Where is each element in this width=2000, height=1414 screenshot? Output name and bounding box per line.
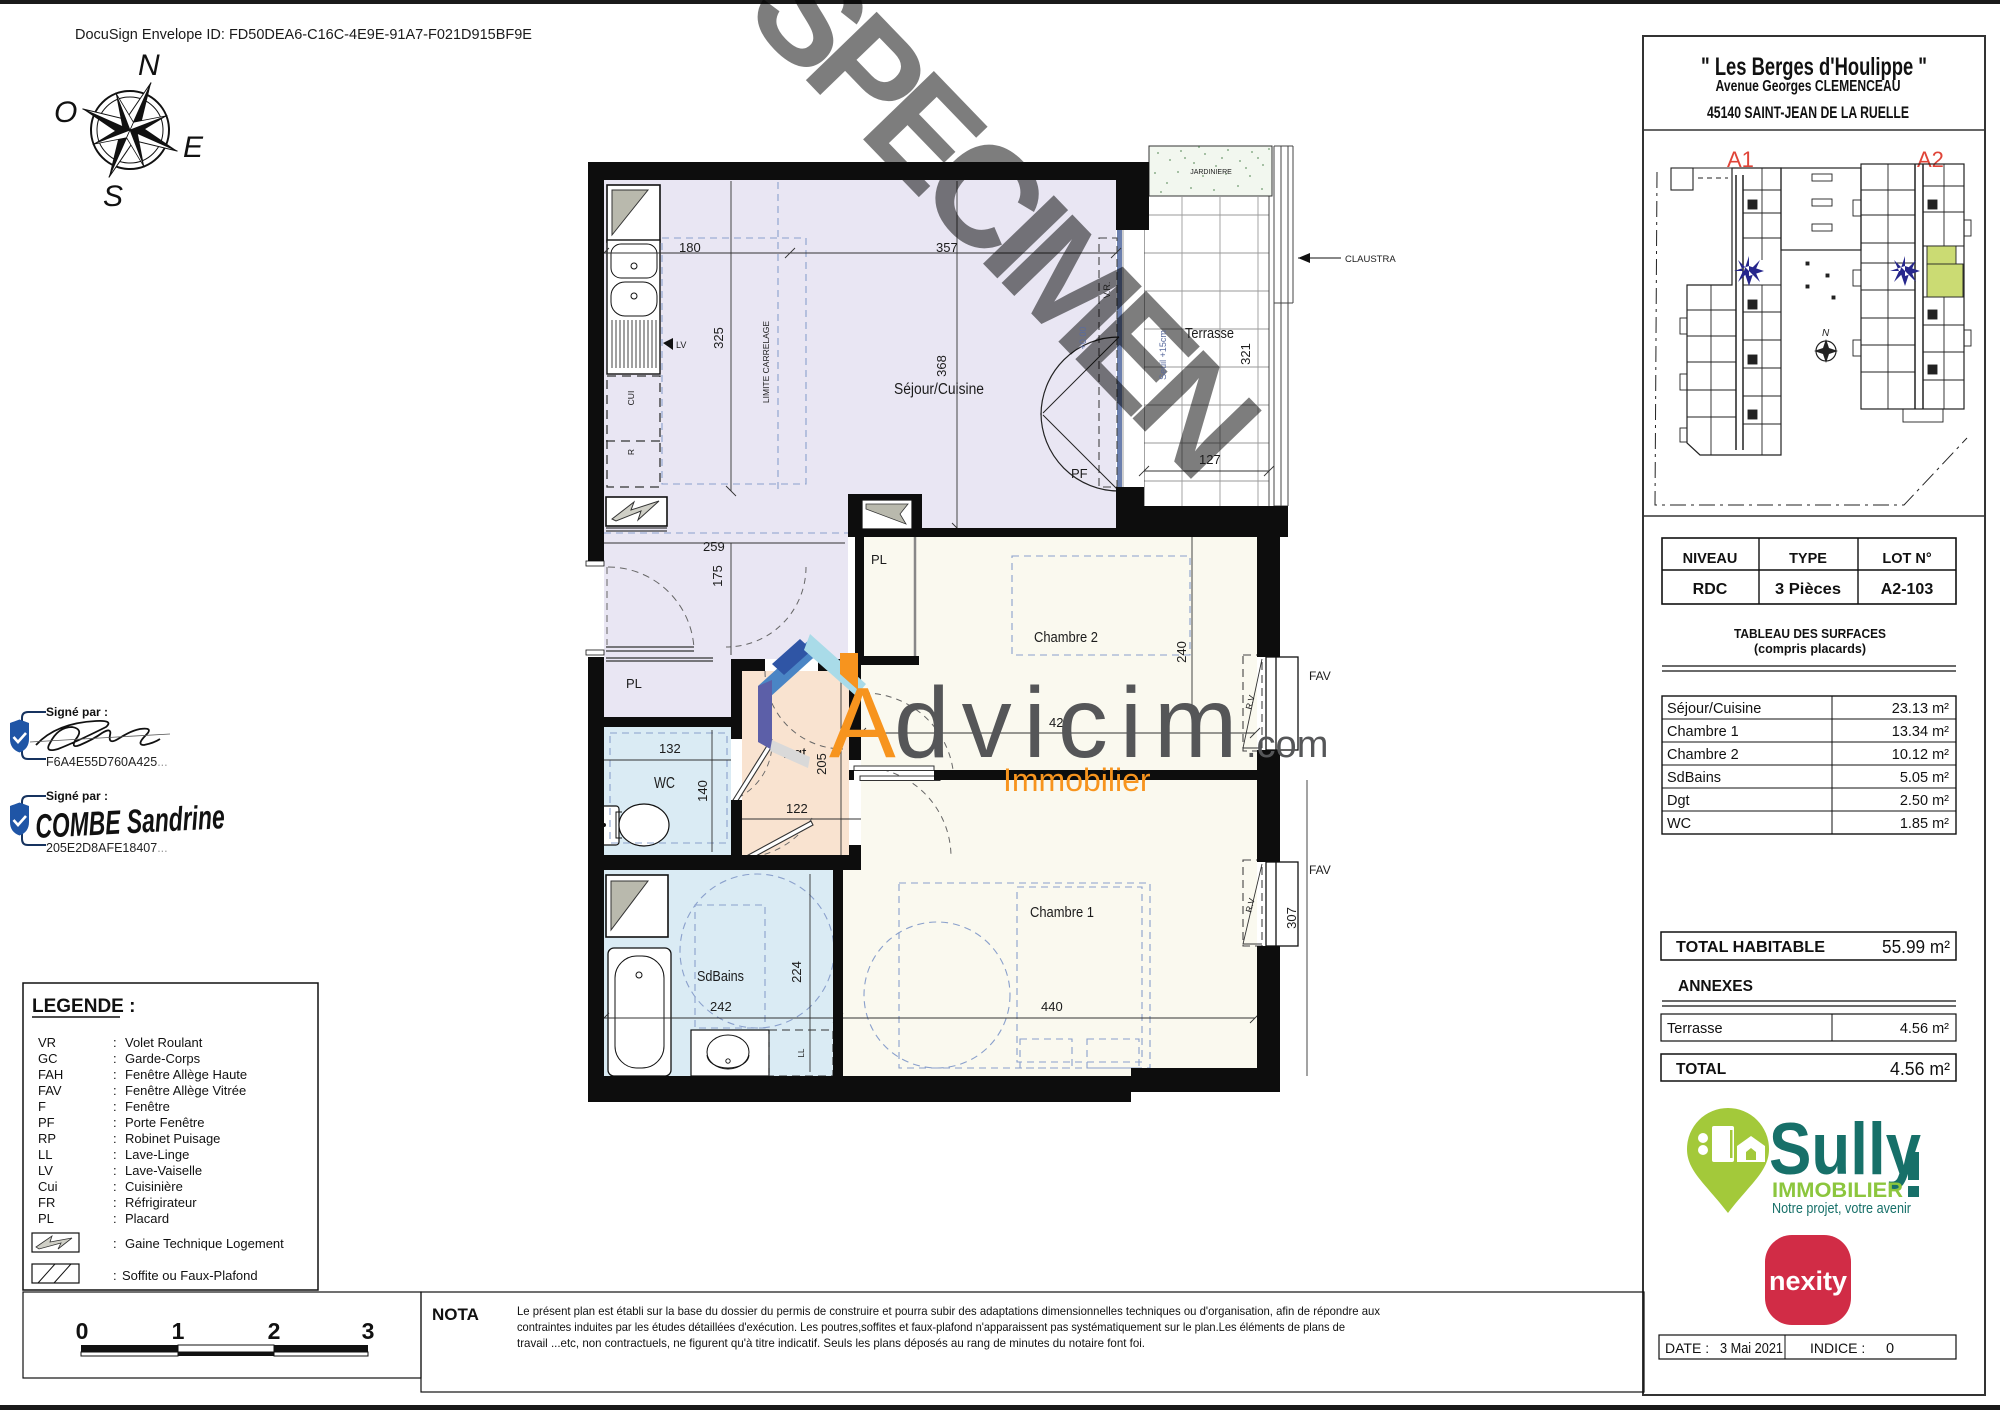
svg-text:307: 307 [1284,907,1299,929]
svg-text:LOT N°: LOT N° [1882,551,1931,567]
svg-text:Avenue Georges CLEMENCEAU: Avenue Georges CLEMENCEAU [1716,78,1901,95]
svg-text:0: 0 [76,1318,89,1344]
svg-text:R: R [626,449,636,455]
svg-text:Gaine Technique Logement: Gaine Technique Logement [125,1236,284,1251]
svg-text:+0.00: +0.00 [1078,327,1088,350]
svg-text:Chambre 1: Chambre 1 [1667,724,1739,740]
svg-text::: : [113,1179,117,1194]
svg-text::: : [113,1115,117,1130]
svg-text:NOTA: NOTA [432,1305,479,1324]
svg-text:3 Mai 2021: 3 Mai 2021 [1720,1341,1783,1357]
svg-text:10.12 m²: 10.12 m² [1892,747,1949,763]
svg-text:VR: VR [38,1035,56,1050]
svg-text:1.85 m²: 1.85 m² [1900,816,1949,832]
svg-text:45140 SAINT-JEAN DE LA RUELLE: 45140 SAINT-JEAN DE LA RUELLE [1707,104,1909,122]
svg-text:Garde-Corps: Garde-Corps [125,1051,201,1066]
svg-text:205E2D8AFE18407...: 205E2D8AFE18407... [46,841,168,855]
svg-text:ANNEXES: ANNEXES [1678,978,1753,995]
svg-text:127: 127 [1199,452,1221,467]
svg-text:180: 180 [679,240,701,255]
svg-text:122: 122 [786,801,808,816]
svg-text:PL: PL [38,1211,54,1226]
svg-text:(compris placards): (compris placards) [1754,641,1866,656]
svg-text:357: 357 [936,240,958,255]
svg-text:Dgt: Dgt [1667,793,1690,809]
svg-text:RDC: RDC [1693,581,1728,598]
svg-text:LIMITE CARRELAGE: LIMITE CARRELAGE [761,321,771,404]
svg-text:440: 440 [1041,999,1063,1014]
svg-text:Le présent plan est établi sur: Le présent plan est établi sur la base d… [517,1304,1380,1318]
svg-text::: : [113,1131,117,1146]
svg-text:Immobilier: Immobilier [1003,762,1151,798]
svg-text:JARDINIERE: JARDINIERE [1190,169,1232,176]
svg-text:N: N [138,49,160,82]
svg-text::: : [113,1083,117,1098]
svg-text:Terrasse: Terrasse [1667,1021,1723,1037]
svg-text:259: 259 [703,539,725,554]
svg-text:TOTAL HABITABLE: TOTAL HABITABLE [1676,939,1825,956]
svg-text:.com: .com [1246,724,1328,766]
svg-text:0: 0 [1886,1341,1894,1357]
svg-text::: : [113,1099,117,1114]
svg-text:55.99 m²: 55.99 m² [1882,937,1950,957]
svg-text:IMMOBILIER: IMMOBILIER [1772,1179,1903,1202]
svg-text:Cui: Cui [38,1179,58,1194]
svg-text:LL: LL [797,1048,806,1057]
svg-text:2.50 m²: 2.50 m² [1900,793,1949,809]
svg-text:1: 1 [172,1318,185,1344]
svg-text:FR: FR [38,1195,55,1210]
svg-text:Robinet Puisage: Robinet Puisage [125,1131,220,1146]
svg-text:4.56 m²: 4.56 m² [1890,1059,1950,1079]
svg-text:Réfrigirateur: Réfrigirateur [125,1195,197,1210]
svg-text:Placard: Placard [125,1211,169,1226]
svg-text:2: 2 [268,1318,281,1344]
svg-text:Terrasse: Terrasse [1185,325,1234,342]
svg-text:Lave-Vaiselle: Lave-Vaiselle [125,1163,202,1178]
svg-text:PL: PL [626,676,642,691]
svg-text:Porte Fenêtre: Porte Fenêtre [125,1115,205,1130]
svg-text:LL: LL [38,1147,52,1162]
svg-text:" Les Berges d'Houlippe ": " Les Berges d'Houlippe " [1701,53,1927,81]
svg-text:PF: PF [38,1115,55,1130]
svg-text:Signé par :: Signé par : [46,789,108,803]
svg-text:FAV: FAV [1309,669,1331,683]
svg-text:Fenêtre: Fenêtre [125,1099,170,1114]
svg-text::: : [113,1195,117,1210]
svg-text:TYPE: TYPE [1789,551,1827,567]
svg-text::: : [113,1051,117,1066]
svg-text:N: N [1822,328,1830,339]
svg-text:4.56 m²: 4.56 m² [1900,1021,1949,1037]
svg-text:F6A4E55D760A425...: F6A4E55D760A425... [46,755,168,769]
svg-text:O: O [54,96,77,129]
svg-text:Fenêtre Allège Vitrée: Fenêtre Allège Vitrée [125,1083,246,1098]
svg-text:FAV: FAV [38,1083,62,1098]
svg-text:3 Pièces: 3 Pièces [1775,581,1841,598]
svg-text:205: 205 [814,753,829,775]
svg-text::: : [113,1236,117,1251]
svg-text:Soffite ou Faux-Plafond: Soffite ou Faux-Plafond [122,1268,258,1283]
svg-text:TOTAL: TOTAL [1676,1061,1726,1078]
svg-text:DocuSign Envelope ID: FD50DEA6: DocuSign Envelope ID: FD50DEA6-C16C-4E9E… [75,27,532,43]
svg-text::: : [113,1211,117,1226]
svg-text:Séjour/Cuisine: Séjour/Cuisine [1667,701,1761,717]
svg-text:175: 175 [710,565,725,587]
svg-text::: : [113,1268,117,1283]
svg-text:321: 321 [1238,343,1253,365]
svg-text:224: 224 [789,961,804,983]
svg-text:132: 132 [659,741,681,756]
svg-text:5.05 m²: 5.05 m² [1900,770,1949,786]
svg-text::: : [113,1163,117,1178]
svg-text:PL: PL [871,552,887,567]
svg-text:325: 325 [711,327,726,349]
svg-text:DATE :: DATE : [1665,1340,1709,1356]
svg-text:GC: GC [38,1051,58,1066]
svg-text:Chambre 2: Chambre 2 [1667,747,1739,763]
svg-text:A2-103: A2-103 [1881,581,1934,598]
svg-text::: : [113,1067,117,1082]
svg-text:FAV: FAV [1309,863,1331,877]
svg-text:F: F [38,1099,46,1114]
svg-text:Chambre 2: Chambre 2 [1034,629,1098,646]
svg-text:Signé par :: Signé par : [46,705,108,719]
svg-text:Seuil +15cm: Seuil +15cm [1158,330,1168,380]
svg-text:RP: RP [38,1131,56,1146]
svg-text:LV: LV [38,1163,53,1178]
svg-text:242: 242 [710,999,732,1014]
svg-text:Notre projet, votre avenir: Notre projet, votre avenir [1772,1201,1911,1217]
svg-text:WC: WC [1667,816,1691,832]
svg-text:NIVEAU: NIVEAU [1683,551,1738,567]
svg-text:Chambre 1: Chambre 1 [1030,904,1094,921]
svg-text:LV: LV [676,340,686,350]
svg-text:WC: WC [654,775,675,792]
svg-text:S: S [103,180,123,213]
svg-text:V.R.: V.R. [1102,282,1112,299]
svg-text:FAH: FAH [38,1067,63,1082]
svg-text:368: 368 [934,355,949,377]
svg-text:23.13 m²: 23.13 m² [1892,701,1949,717]
svg-text:PF: PF [1071,466,1088,481]
svg-text:A2: A2 [1917,147,1944,172]
svg-text:TABLEAU DES SURFACES: TABLEAU DES SURFACES [1734,626,1886,641]
svg-text:Cuisinière: Cuisinière [125,1179,183,1194]
svg-text:140: 140 [695,780,710,802]
svg-text:INDICE :: INDICE : [1810,1340,1865,1356]
svg-text:Lave-Linge: Lave-Linge [125,1147,189,1162]
svg-text:13.34 m²: 13.34 m² [1892,724,1949,740]
svg-text:CUI: CUI [626,391,636,406]
svg-text:Sully: Sully [1769,1109,1921,1190]
svg-text:Séjour/Cuisine: Séjour/Cuisine [894,381,984,398]
svg-text::: : [113,1147,117,1162]
svg-text:nexity: nexity [1769,1266,1847,1296]
svg-text:contraintes induites par les é: contraintes induites par les études déta… [517,1320,1345,1334]
svg-text:CLAUSTRA: CLAUSTRA [1345,254,1396,265]
svg-text:3: 3 [362,1318,375,1344]
svg-text:Fenêtre Allège Haute: Fenêtre Allège Haute [125,1067,247,1082]
svg-text:240: 240 [1174,641,1189,663]
svg-text:LEGENDE :: LEGENDE : [32,996,135,1017]
svg-text:SdBains: SdBains [1667,770,1721,786]
svg-text:Volet Roulant: Volet Roulant [125,1035,203,1050]
svg-text:travail ...etc, non contractue: travail ...etc, non contractuels, ne fig… [517,1336,1145,1350]
svg-text::: : [113,1035,117,1050]
svg-text:E: E [183,131,204,164]
svg-text:A: A [829,667,896,779]
svg-text:SdBains: SdBains [697,968,744,985]
